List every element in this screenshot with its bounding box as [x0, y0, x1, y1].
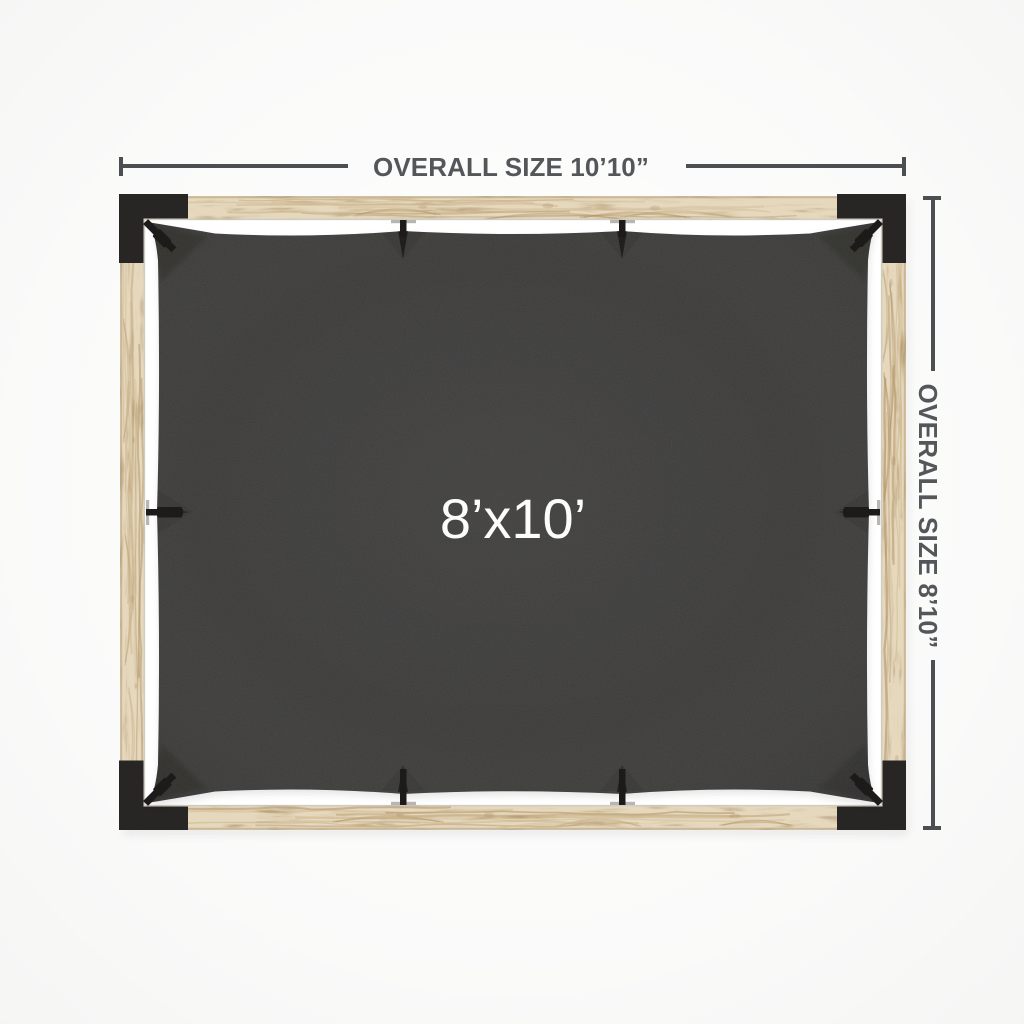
svg-text:OVERALL SIZE 8’10”: OVERALL SIZE 8’10”	[913, 384, 943, 649]
svg-text:OVERALL SIZE 10’10”: OVERALL SIZE 10’10”	[373, 152, 649, 182]
svg-text:8’x10’: 8’x10’	[440, 487, 586, 550]
